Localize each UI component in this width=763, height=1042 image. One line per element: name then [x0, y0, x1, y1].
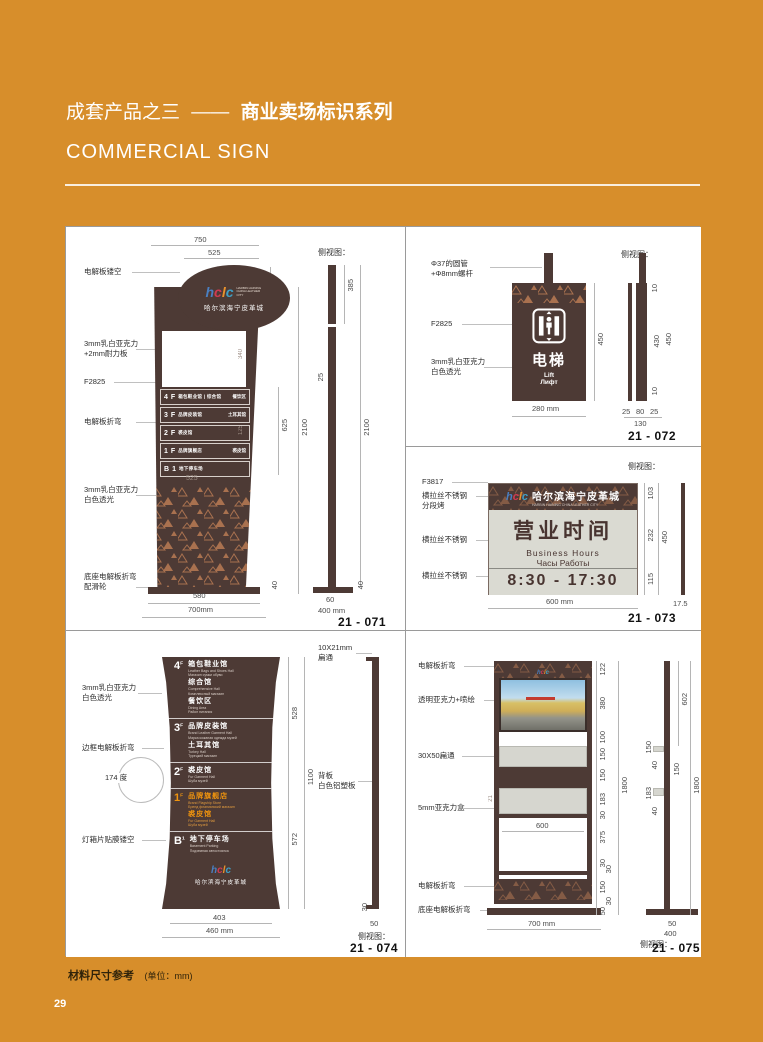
directory-row: B1 地下停车场 — [160, 461, 250, 477]
brand-tagline: HARBIN HAINING CHINA LEATHER CITY — [532, 503, 620, 507]
material-label: 3mm乳白亚克力 白色透光 — [431, 357, 485, 377]
leader-line — [464, 666, 494, 667]
dim-side-total: 450 — [664, 333, 673, 346]
dim-side-total: 1800 — [692, 777, 701, 794]
directory-row: 1F 品牌旗舰店 裘皮馆 — [160, 443, 250, 459]
ghost-dim: 340 — [238, 349, 244, 359]
material-label: F3817 — [422, 477, 443, 487]
elevator-en: Lift — [512, 372, 586, 379]
panel-21-072: 侧视图： Φ37的圆管 +Φ8mm螺杆 F2825 3mm乳白亚克力 白色透光 — [406, 227, 701, 446]
dim-line — [170, 923, 272, 924]
dim-d8: 375 — [598, 831, 607, 844]
page-subtitle: COMMERCIAL SIGN — [66, 141, 270, 164]
dim-line — [142, 617, 266, 618]
dim-side-logo-height: 385 — [346, 279, 355, 292]
plaque-side-profile — [681, 483, 685, 595]
hours-ru: Часы Работы — [489, 558, 637, 568]
drawing-grid: 侧视图： 750 525 电解板镂空 3mm乳白亚克力 +2mm耐力板 F282… — [65, 226, 700, 956]
material-label: 底座电解板折弯 — [418, 905, 471, 915]
drawing-code: 21 - 075 — [652, 941, 700, 955]
dim-line — [644, 509, 645, 567]
profile-label: 10X21mm 扁通 — [318, 643, 352, 663]
side-view-label: 侧视图： — [621, 249, 653, 260]
material-label: 边框电解板折弯 — [82, 743, 135, 753]
material-label: 5mm亚克力盒 — [418, 803, 465, 813]
stand-base — [487, 908, 601, 915]
side-view-label: 侧视图： — [318, 247, 350, 258]
dim-top-height: 528 — [290, 707, 299, 720]
dim-side-inner: 430 — [652, 335, 661, 348]
stand-side-post — [664, 661, 670, 915]
side-view-label: 侧视图： — [628, 461, 660, 472]
dim-inner-width: 403 — [213, 913, 226, 922]
brand-tagline: HARBIN HAINING CHINA LEATHER CITY — [237, 287, 263, 298]
leader-line — [114, 382, 162, 383]
dim-total-width: 130 — [634, 419, 647, 428]
dim-side-total-height: 2100 — [362, 419, 371, 436]
leader-line — [464, 808, 496, 809]
dim-line — [644, 483, 645, 509]
dim-side-bottom: 30 — [360, 903, 369, 911]
poster-image — [501, 680, 585, 730]
triangle-pattern — [152, 485, 260, 587]
panel-21-073: 侧视图： F3817 横拉丝不锈钢 分段烤 横拉丝不锈钢 横拉丝不锈钢 hclc… — [406, 447, 701, 630]
brochure-tray-1 — [499, 746, 587, 767]
material-label: 电解板镂空 — [84, 267, 122, 277]
dim-top-width: 750 — [194, 235, 207, 244]
dim-line — [624, 417, 662, 418]
page-number: 29 — [54, 998, 66, 1010]
leader-line — [484, 367, 512, 368]
directory-row: 3F 品牌皮装馆Brand Leather Garment HallМарка … — [162, 718, 280, 762]
dim-total-height: 1100 — [306, 769, 315, 785]
dim-width: 600 mm — [546, 597, 573, 606]
side-tray-2 — [653, 788, 664, 796]
dim-d10: 30 — [604, 865, 613, 873]
dim-tray-thickness: 21 — [488, 795, 494, 802]
catalog-page: 成套产品之三 —— 商业卖场标识系列 COMMERCIAL SIGN 侧视图： … — [0, 0, 763, 1042]
leader-line — [452, 482, 488, 483]
plaque-body: 营业时间 Business Hours Часы Работы — [489, 510, 637, 568]
panel-21-074: 3mm乳白亚克力 白色透光 边框电解板折弯 174 度 灯箱片贴膜镂空 4F 箱… — [66, 631, 405, 957]
angle-label: 174 度 — [104, 773, 128, 783]
dim-line — [690, 661, 691, 915]
stand-header-band: hclc 哈尔滨海宁皮革城 — [494, 661, 592, 678]
brand-logo: hclc — [506, 491, 528, 503]
dim-line — [596, 661, 597, 915]
rail — [499, 814, 587, 818]
header-rule — [65, 184, 700, 186]
dim-line — [512, 416, 586, 417]
leader-line — [490, 267, 542, 268]
dim-overall-width: 700mm — [188, 605, 213, 614]
dim-line — [344, 265, 345, 324]
dim-line — [487, 929, 601, 930]
elevator-text: 电梯 Lift Лифт — [512, 349, 586, 386]
dim-line — [678, 661, 679, 746]
hours-en: Business Hours — [489, 548, 637, 558]
material-label: 3mm乳白亚克力 白色透光 — [84, 485, 138, 505]
brand-name: 哈尔滨海宁皮革城 — [532, 488, 620, 503]
elevator-cn: 电梯 — [512, 349, 586, 370]
dim-bottom-height: 572 — [290, 833, 299, 846]
dim-line — [288, 657, 289, 778]
dim-s3: 40 — [650, 761, 659, 769]
material-label: 横拉丝不锈钢 分段烤 — [422, 491, 467, 511]
directory-row: B1 地下停车场Basement ParkingПодземная автост… — [162, 831, 280, 856]
dim-h1: 103 — [646, 487, 655, 500]
dim-s2: 150 — [644, 741, 653, 754]
dim-line — [278, 387, 279, 475]
dim-side-b1: 50 — [668, 919, 676, 928]
leader-line — [138, 693, 162, 694]
plaque-hours-row: 8:30 - 17:30 — [489, 568, 637, 595]
totem-sign-elevation: 340 125 4F 箱包鞋业馆 | 综合馆 餐饮区 3F 品牌皮装馆 土耳其馆… — [152, 287, 260, 587]
totem-side-profile — [328, 265, 336, 587]
sign-side-plate — [628, 283, 632, 401]
rail — [494, 900, 592, 904]
dim-line — [658, 483, 659, 595]
material-label: 灯箱片贴膜镂空 — [82, 835, 135, 845]
drawing-code: 21 - 072 — [628, 429, 676, 443]
dim-d11: 150 — [598, 881, 607, 894]
elevator-icon — [532, 307, 566, 344]
dim-inner-width: 600 — [536, 821, 549, 830]
poster-frame — [499, 678, 587, 732]
poster-banner — [526, 697, 555, 700]
drawing-code: 21 - 071 — [338, 615, 386, 629]
dim-b2: 80 — [636, 407, 644, 416]
directory-row-highlight: 1F 品牌旗舰店Brand Flagship StoreБренд флагма… — [162, 788, 280, 832]
material-label: 电解板折弯 — [418, 881, 456, 891]
material-label: F2825 — [84, 377, 105, 387]
leader-line — [136, 495, 156, 496]
material-label: 横拉丝不锈钢 — [422, 535, 467, 545]
dim-h2: 232 — [646, 529, 655, 542]
dim-line — [184, 258, 259, 259]
dim-side-bottom: 10 — [650, 387, 659, 395]
dim-d4: 150 — [598, 748, 607, 761]
dim-s4: 150 — [672, 763, 681, 776]
dim-side-base-width: 60 — [326, 595, 334, 604]
hours-plaque: hclc 哈尔滨海宁皮革城 HARBIN HAINING CHINA LEATH… — [488, 483, 638, 595]
dim-side-width: 50 — [370, 919, 378, 928]
dim-s1: 602 — [680, 693, 689, 706]
profile-hook-top — [366, 657, 372, 661]
dim-line — [304, 657, 305, 909]
hours-value: 8:30 - 17:30 — [489, 569, 637, 590]
elevator-sign-elevation: 电梯 Lift Лифт — [512, 283, 586, 401]
brand-name: 哈尔滨海宁皮革城 — [162, 878, 280, 886]
dim-line — [502, 831, 584, 832]
dim-line — [644, 567, 645, 595]
dim-d7: 30 — [598, 811, 607, 819]
dim-inner-width: 525 — [208, 248, 221, 257]
dim-total-height: 2100 — [300, 419, 309, 436]
dim-width: 280 mm — [532, 404, 559, 413]
dim-side-b2: 400 — [664, 929, 677, 938]
dim-s6: 40 — [650, 807, 659, 815]
side-base — [313, 587, 353, 593]
dim-d2: 380 — [598, 697, 607, 710]
dim-side-thickness: 25 — [316, 373, 325, 381]
side-tray-1 — [653, 746, 664, 752]
dim-side-overall-width: 400 mm — [318, 606, 345, 615]
dim-line — [162, 937, 280, 938]
title-dash: —— — [191, 102, 229, 123]
dim-base-width: 580 — [193, 591, 206, 600]
sign-side-profile — [636, 283, 647, 401]
backboard-label: 背板 白色铝塑板 — [318, 771, 356, 791]
material-label: F2825 — [431, 319, 452, 329]
crossbar — [499, 767, 587, 788]
leader-line — [142, 748, 164, 749]
material-label: Φ37的圆管 +Φ8mm螺杆 — [431, 259, 473, 279]
footer-title: 材料尺寸参考 — [68, 970, 134, 982]
directory-row: 4F 箱包鞋业馆Leather Bags and Shoes HallМагаз… — [162, 657, 280, 718]
directory-logo: hclc 哈尔滨海宁皮革城 — [162, 860, 280, 886]
dim-line — [148, 603, 260, 604]
plaque-header: hclc 哈尔滨海宁皮革城 HARBIN HAINING CHINA LEATH… — [489, 484, 637, 510]
footer-unit: (单位：mm) — [144, 971, 192, 981]
material-label: 30X50扁通 — [418, 751, 455, 761]
material-label: 3mm乳白亚克力 +2mm耐力板 — [84, 339, 138, 359]
dim-side-top: 10 — [650, 284, 659, 292]
leader-line — [462, 324, 512, 325]
dim-s5: 183 — [644, 787, 653, 800]
directory-row: 4F 箱包鞋业馆 | 综合馆 餐饮区 — [160, 389, 250, 405]
elevator-ru: Лифт — [512, 379, 586, 386]
dim-line — [618, 661, 619, 915]
triangle-pattern — [494, 879, 592, 900]
dim-line — [298, 287, 299, 594]
hours-title: 营业时间 — [489, 510, 637, 545]
leader-line — [464, 886, 494, 887]
leader-line — [132, 272, 180, 273]
material-label: 3mm乳白亚克力 白色透光 — [82, 683, 136, 703]
rail — [499, 871, 587, 875]
dim-line — [488, 608, 638, 609]
title-prefix: 成套产品之三 — [66, 102, 180, 123]
dim-b3: 25 — [650, 407, 658, 416]
brochure-tray-2 — [499, 788, 587, 814]
leader-line — [356, 653, 372, 654]
dim-width: 460 mm — [206, 926, 233, 935]
dim-side-thickness: 17.5 — [673, 599, 688, 608]
material-label: 电解板折弯 — [84, 417, 122, 427]
leader-line — [142, 840, 166, 841]
dim-line — [594, 283, 595, 401]
material-label: 底座电解板折弯 配滑轮 — [84, 572, 137, 592]
dim-total-height: 450 — [660, 531, 669, 544]
leader-line — [462, 756, 496, 757]
dim-line — [360, 265, 361, 587]
hanger-stem — [544, 253, 553, 283]
material-label: 电解板折弯 — [418, 661, 456, 671]
title-main: 商业卖场标识系列 — [241, 102, 393, 123]
stand-post-right — [587, 661, 592, 904]
dim-total-height: 1800 — [620, 777, 629, 794]
directory-row: 3F 品牌皮装馆 土耳其馆 — [160, 407, 250, 423]
stand-bottom-band — [494, 879, 592, 900]
panel-21-071: 侧视图： 750 525 电解板镂空 3mm乳白亚克力 +2mm耐力板 F282… — [66, 227, 405, 630]
brand-name: 哈尔滨海宁皮革城 — [204, 302, 264, 312]
dim-line — [288, 778, 289, 909]
directory-mini: 4F 箱包鞋业馆 | 综合馆 餐饮区 3F 品牌皮装馆 土耳其馆 2F 裘皮馆 — [160, 389, 250, 479]
directory-row: 2F 裘皮馆Fur Garment HallШуба музей — [162, 762, 280, 787]
triangle-pattern — [512, 283, 586, 303]
dim-d6: 183 — [598, 793, 607, 806]
dim-base-thickness: 40 — [270, 581, 279, 589]
leader-line — [358, 781, 372, 782]
dim-list-height: 625 — [280, 419, 289, 432]
material-label: 横拉丝不锈钢 — [422, 571, 467, 581]
dim-side-base-thickness: 40 — [356, 581, 365, 589]
directory-row: 2F 裘皮馆 — [160, 425, 250, 441]
material-label: 透明亚克力+喷绘 — [418, 695, 475, 705]
dim-width: 700 mm — [528, 919, 555, 928]
ghost-dim: 525 — [186, 475, 198, 482]
brand-logo: hclc — [205, 284, 233, 300]
wall-directory-elevation: 4F 箱包鞋业馆Leather Bags and Shoes HallМагаз… — [162, 657, 280, 909]
drawing-code: 21 - 074 — [350, 941, 398, 955]
dim-line — [151, 245, 259, 246]
profile-gap — [328, 324, 336, 327]
dim-d1: 122 — [598, 663, 607, 676]
drawing-code: 21 - 073 — [628, 611, 676, 625]
dim-b1: 25 — [622, 407, 630, 416]
info-stand-elevation: hclc 哈尔滨海宁皮革城 600 — [494, 661, 592, 904]
side-stem — [639, 253, 646, 283]
footer-note: 材料尺寸参考 (单位：mm) — [68, 966, 192, 984]
lightbox-panel — [162, 331, 246, 387]
dim-d3: 100 — [598, 731, 607, 744]
dim-d13: 50 — [598, 907, 607, 915]
directory-side-profile — [372, 657, 379, 909]
panel-21-075: 电解板折弯 透明亚克力+喷绘 30X50扁通 5mm亚克力盒 电解板折弯 底座电… — [406, 631, 701, 957]
dim-d12: 30 — [604, 897, 613, 905]
dim-h3: 115 — [646, 573, 655, 585]
leader-line — [476, 496, 488, 497]
dim-d5: 150 — [598, 769, 607, 782]
dim-height: 450 — [596, 333, 605, 346]
logo-oval: hclc HARBIN HAINING CHINA LEATHER CITY 哈… — [178, 265, 290, 331]
page-title: 成套产品之三 —— 商业卖场标识系列 — [66, 97, 393, 124]
